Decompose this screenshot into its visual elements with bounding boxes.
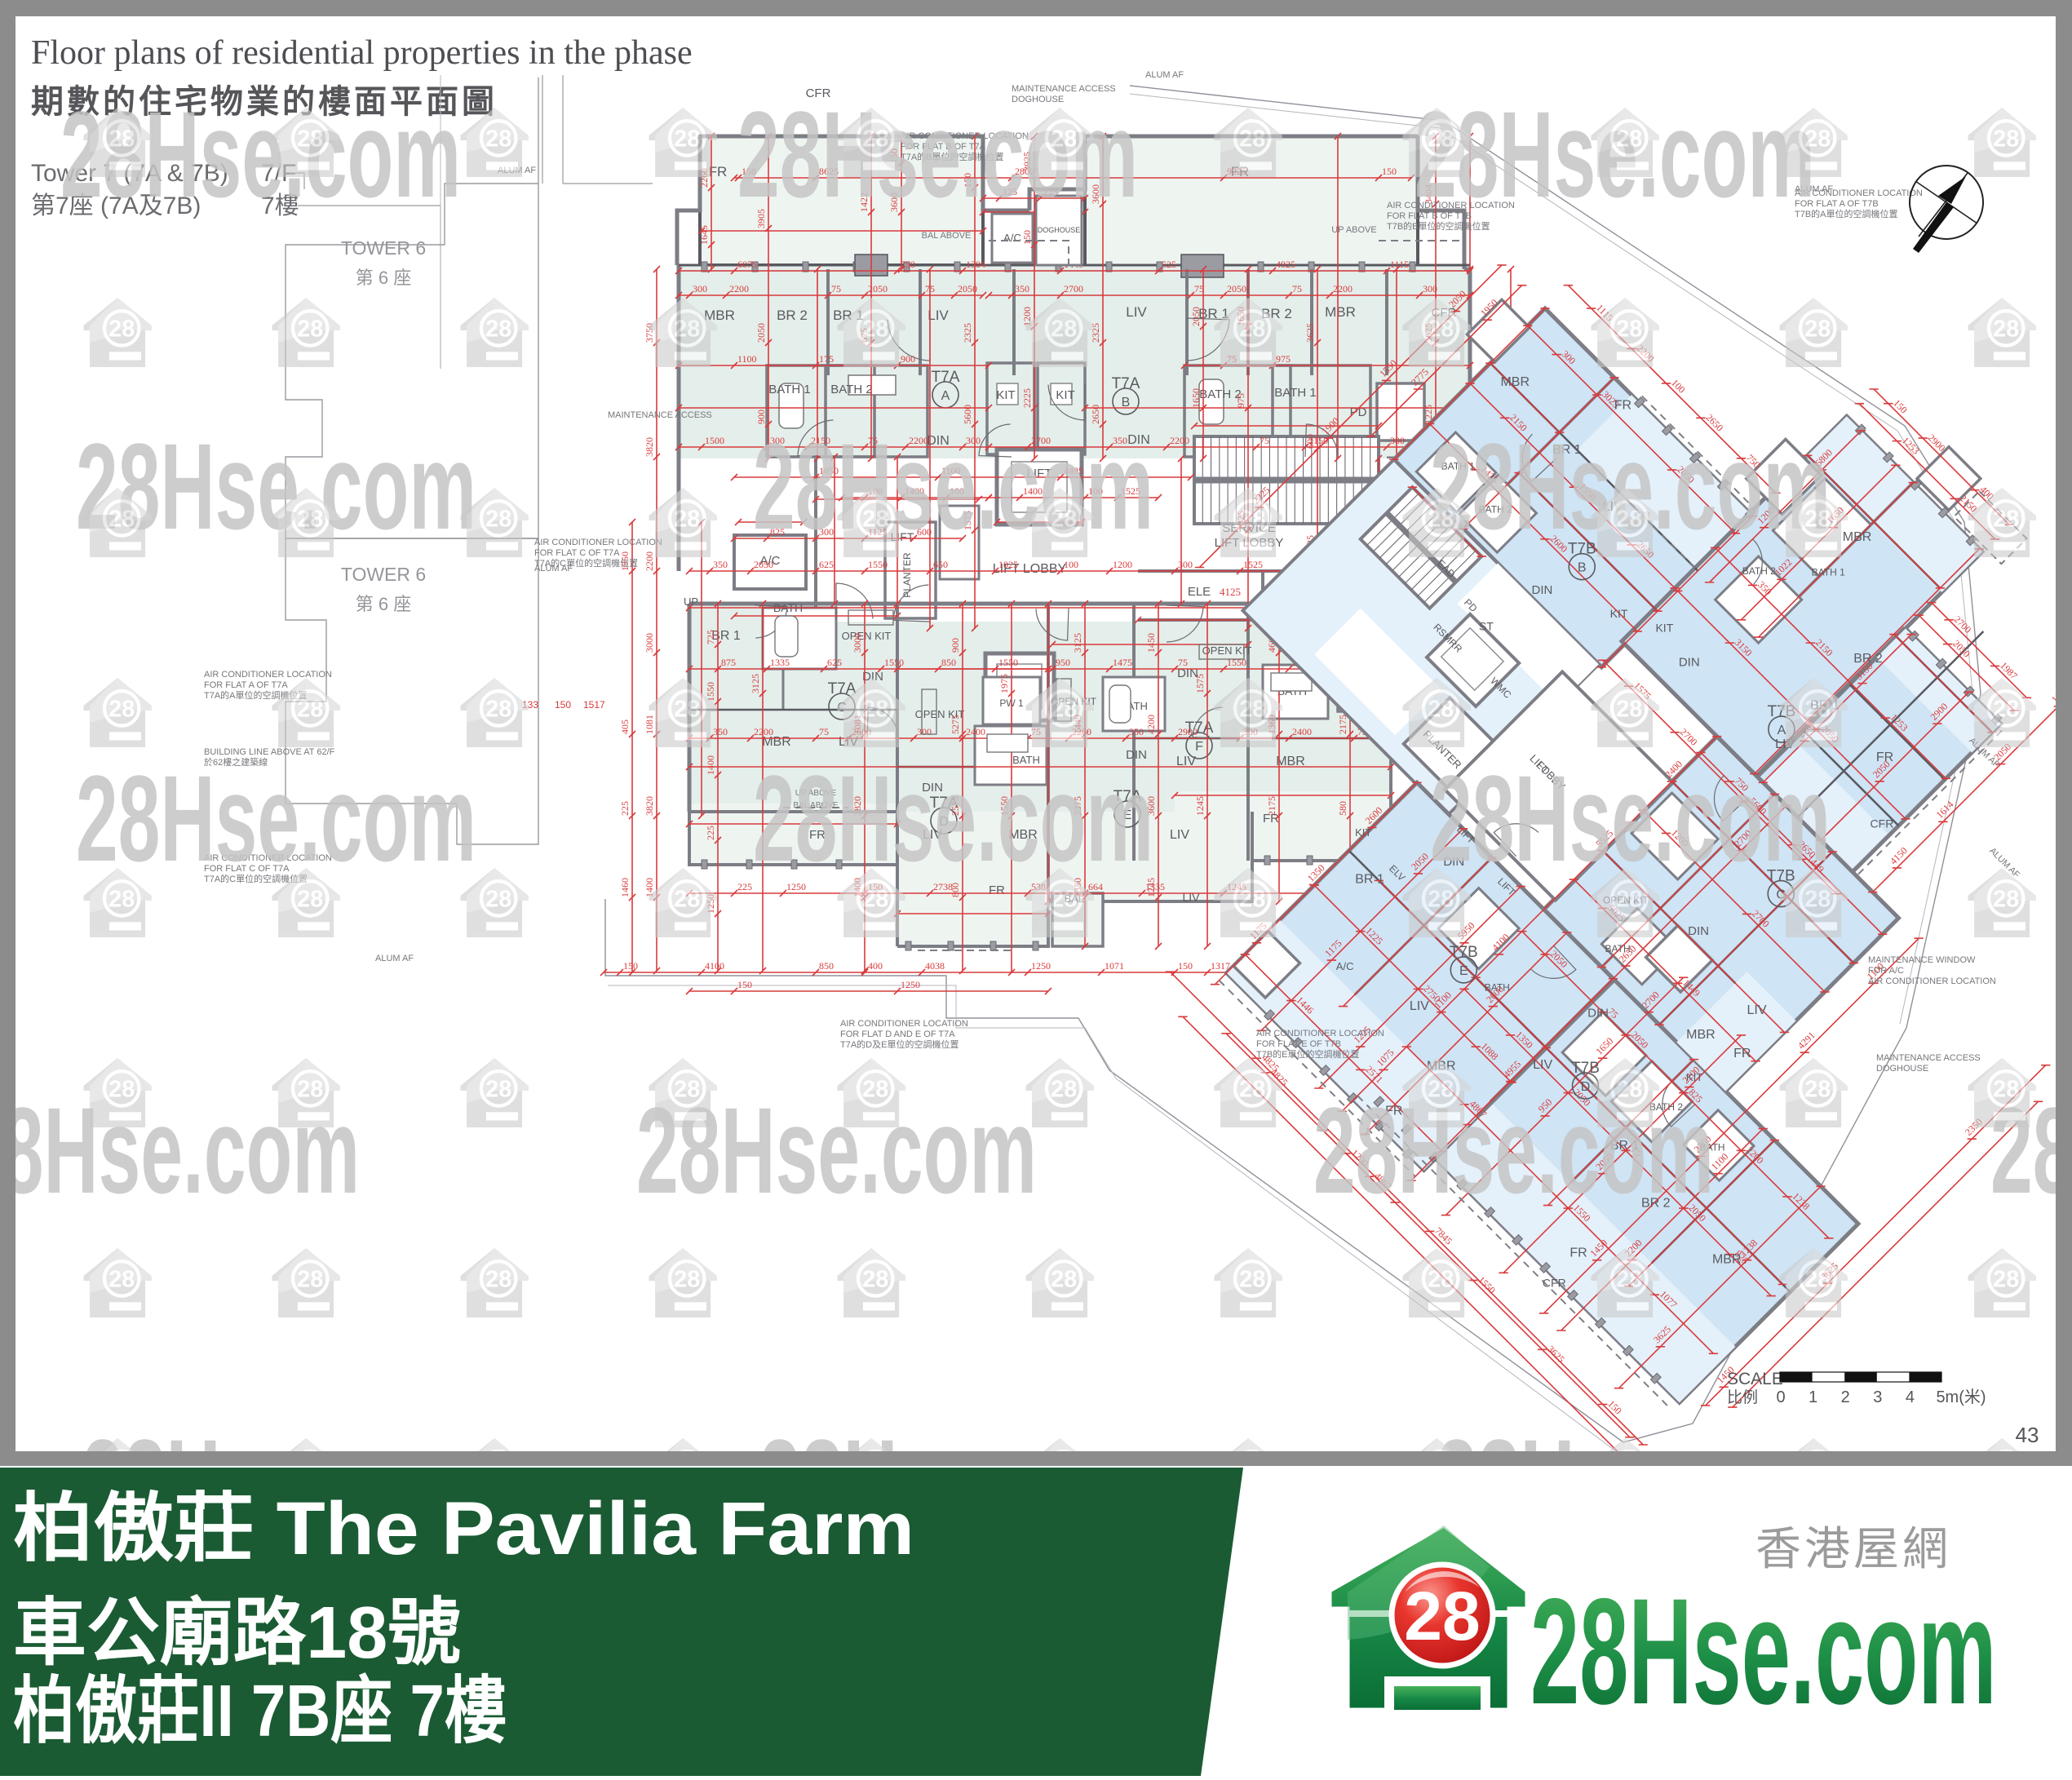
svg-text:75: 75 [819,726,829,737]
svg-text:BATH 1: BATH 1 [1274,386,1316,400]
svg-text:DIN: DIN [1688,924,1709,938]
svg-text:5275: 5275 [950,715,961,734]
svg-text:MAINTENANCE ACCESS: MAINTENANCE ACCESS [608,410,712,420]
svg-text:DOGHOUSE: DOGHOUSE [1876,1064,1928,1074]
svg-text:LIV: LIV [1126,304,1147,320]
svg-text:DIN: DIN [1532,583,1553,597]
svg-text:ALUM AF: ALUM AF [375,954,414,963]
svg-text:1525: 1525 [1243,559,1263,570]
svg-text:KIT: KIT [1655,622,1673,635]
svg-text:2400: 2400 [1292,726,1312,737]
svg-text:350: 350 [1129,726,1144,737]
svg-text:2175: 2175 [1266,796,1277,816]
svg-text:100: 100 [1064,559,1078,570]
svg-text:150: 150 [1382,166,1397,177]
svg-text:1245: 1245 [1194,796,1206,816]
svg-text:比例: 比例 [1727,1388,1758,1406]
svg-text:3125: 3125 [1072,633,1083,653]
svg-text:2: 2 [1841,1388,1850,1406]
svg-text:LIV: LIV [1170,828,1189,842]
svg-text:150: 150 [1021,230,1033,245]
svg-text:525: 525 [1162,259,1176,270]
svg-text:1550: 1550 [884,657,904,668]
svg-text:B: B [1578,561,1587,575]
svg-text:1500: 1500 [705,435,724,446]
svg-text:BATH: BATH [1605,943,1631,954]
svg-text:2200: 2200 [1333,283,1353,294]
svg-text:300: 300 [693,283,707,294]
svg-text:300: 300 [1390,435,1405,446]
svg-text:香港屋網: 香港屋網 [1755,1523,1951,1574]
svg-text:AIR CONDITIONER LOCATION: AIR CONDITIONER LOCATION [1868,976,1996,986]
svg-text:OPEN KIT: OPEN KIT [842,630,892,642]
svg-text:225: 225 [705,826,716,840]
svg-text:3820: 3820 [644,796,655,816]
svg-text:4200: 4200 [1145,715,1157,734]
svg-text:28Hse.com: 28Hse.com [1530,1568,1996,1736]
svg-text:T7A: T7A [1112,375,1140,392]
svg-text:650: 650 [933,559,948,570]
svg-text:43: 43 [2016,1423,2039,1447]
svg-text:1115: 1115 [1390,259,1409,270]
svg-text:2200: 2200 [1170,435,1189,446]
svg-text:T7B的E單位的空調機位置: T7B的E單位的空調機位置 [1256,1048,1360,1060]
svg-text:4100: 4100 [705,960,724,972]
svg-text:1025: 1025 [998,559,1018,570]
svg-text:850: 850 [941,657,956,668]
svg-text:DIN: DIN [1587,1006,1609,1020]
svg-text:2175: 2175 [1337,715,1348,734]
svg-text:1460: 1460 [619,878,631,897]
svg-text:1081: 1081 [644,715,655,734]
svg-text:KIT: KIT [1610,607,1628,620]
svg-text:1975: 1975 [998,674,1010,693]
svg-text:2050: 2050 [1227,283,1246,294]
svg-text:MBR: MBR [1843,530,1872,544]
svg-text:KIT: KIT [1355,826,1371,839]
svg-text:BATH 2: BATH 2 [830,383,872,396]
svg-text:0: 0 [1776,1388,1785,1406]
svg-text:300: 300 [917,726,932,737]
svg-text:300: 300 [1178,559,1193,570]
svg-text:6075: 6075 [737,259,757,270]
svg-text:FOR FLAT A OF T7A: FOR FLAT A OF T7A [204,680,288,690]
svg-text:2400: 2400 [966,726,985,737]
svg-text:975: 975 [1276,353,1291,365]
svg-text:5m(米): 5m(米) [1936,1388,1986,1406]
svg-text:BR 2: BR 2 [777,308,808,323]
svg-text:3000: 3000 [852,633,863,653]
svg-text:T7A的D及E單位的空調機位置: T7A的D及E單位的空調機位置 [840,1038,959,1050]
svg-text:TOWER 6: TOWER 6 [341,564,426,585]
svg-text:3125: 3125 [750,674,761,693]
svg-text:28Hse.com: 28Hse.com [1313,1083,1714,1219]
svg-text:FR: FR [1614,399,1631,413]
svg-text:FR: FR [1733,1047,1751,1060]
svg-text:BR 2: BR 2 [1853,652,1883,666]
svg-text:BR 1: BR 1 [1355,872,1384,886]
svg-text:2050: 2050 [1190,307,1202,326]
svg-text:FOR FLAT E OF T7B: FOR FLAT E OF T7B [1256,1039,1341,1049]
svg-text:75: 75 [1178,657,1188,668]
svg-text:1071: 1071 [1105,960,1124,972]
svg-text:2050: 2050 [754,559,773,570]
svg-text:Floor plans of residential pro: Floor plans of residential properties in… [31,34,693,72]
svg-text:975: 975 [1235,393,1246,408]
svg-text:E: E [1459,964,1468,978]
svg-text:350: 350 [713,726,728,737]
svg-text:625: 625 [819,559,834,570]
svg-text:T7B: T7B [1450,944,1478,961]
svg-text:1: 1 [1809,1388,1817,1406]
svg-text:3: 3 [1873,1388,1882,1406]
svg-text:第 6 座: 第 6 座 [356,268,411,288]
svg-text:1250: 1250 [901,979,920,990]
svg-text:A: A [1778,724,1786,737]
svg-text:FR: FR [1569,1246,1587,1260]
svg-text:225: 225 [619,801,631,816]
svg-text:ELE: ELE [1188,585,1211,599]
svg-text:A: A [941,389,950,403]
svg-text:ALUM AF: ALUM AF [1145,70,1184,80]
svg-text:2200: 2200 [729,283,749,294]
svg-text:875: 875 [721,657,736,668]
svg-text:28Hse.com: 28Hse.com [76,751,476,887]
svg-text:LIV: LIV [928,308,949,323]
svg-text:A/C: A/C [1003,232,1021,244]
svg-text:SCALE: SCALE [1727,1370,1783,1388]
svg-text:LIV: LIV [1410,999,1429,1013]
svg-text:2050: 2050 [755,323,767,343]
svg-text:MAINTENANCE ACCESS: MAINTENANCE ACCESS [1876,1053,1981,1063]
svg-text:1250: 1250 [1031,960,1051,972]
svg-text:KIT: KIT [1056,388,1074,402]
svg-text:BATH 2: BATH 2 [1742,565,1776,577]
svg-text:2200: 2200 [644,551,655,571]
svg-text:1475: 1475 [1113,657,1132,668]
svg-text:350: 350 [713,559,728,570]
svg-text:1517: 1517 [583,699,605,711]
svg-text:FR: FR [1876,751,1893,764]
svg-text:2225: 2225 [1021,388,1033,408]
svg-text:BATH 1: BATH 1 [1812,566,1845,578]
svg-text:AIR CONDITIONER LOCATION: AIR CONDITIONER LOCATION [204,670,332,680]
svg-text:BATH: BATH [1485,982,1510,994]
svg-text:MBR: MBR [1325,304,1356,320]
svg-text:4: 4 [1906,1388,1915,1406]
svg-text:3000: 3000 [644,633,655,653]
svg-text:1450: 1450 [1145,633,1157,653]
svg-text:900: 900 [901,353,915,365]
svg-text:MAINTENANCE WINDOW: MAINTENANCE WINDOW [1868,955,1976,965]
svg-text:1335: 1335 [770,657,790,668]
svg-text:F: F [1195,740,1203,754]
svg-text:LIV: LIV [1533,1058,1552,1072]
svg-text:2200: 2200 [754,726,773,737]
svg-text:75: 75 [831,283,841,294]
svg-text:AIR CONDITIONER LOCATION: AIR CONDITIONER LOCATION [534,538,662,547]
svg-text:900: 900 [950,638,961,653]
svg-text:柏傲莊II 7B座 7樓: 柏傲莊II 7B座 7樓 [13,1671,507,1752]
svg-text:MBR: MBR [1686,1028,1716,1042]
svg-text:MBR: MBR [1712,1252,1742,1266]
svg-text:28Hse.com: 28Hse.com [1430,751,1831,887]
svg-text:1575: 1575 [1194,674,1206,693]
svg-text:DOGHOUSE: DOGHOUSE [1038,226,1081,234]
svg-text:CFR: CFR [1543,1276,1566,1289]
svg-text:第 6 座: 第 6 座 [356,594,411,614]
svg-text:350: 350 [1015,283,1029,294]
svg-text:625: 625 [827,657,842,668]
svg-text:A/C: A/C [1336,960,1354,972]
svg-text:PLANTER: PLANTER [901,552,913,598]
svg-text:MBR: MBR [1500,375,1530,389]
svg-text:580: 580 [1337,801,1348,816]
svg-text:BATH 1: BATH 1 [768,383,810,396]
svg-text:405: 405 [619,720,631,734]
svg-text:FOR FLAT C OF T7A: FOR FLAT C OF T7A [534,548,620,558]
svg-text:150: 150 [555,699,571,711]
svg-text:4038: 4038 [925,960,945,972]
svg-text:1550: 1550 [998,657,1018,668]
svg-text:150: 150 [737,979,752,990]
svg-text:FOR FLAT D AND E OF T7A: FOR FLAT D AND E OF T7A [840,1029,955,1039]
svg-text:CFR: CFR [1871,817,1894,830]
svg-text:1650: 1650 [1190,388,1202,408]
svg-text:T7A: T7A [932,369,960,386]
svg-text:柏傲莊 The Pavilia Farm: 柏傲莊 The Pavilia Farm [13,1487,914,1570]
svg-text:3625: 3625 [1304,323,1316,343]
svg-text:車公廟路18號: 車公廟路18號 [13,1592,461,1674]
svg-text:150: 150 [1178,960,1193,972]
svg-text:FOR A/C: FOR A/C [1868,966,1904,976]
svg-text:ALUM AF: ALUM AF [534,564,573,573]
svg-text:850: 850 [819,960,834,972]
svg-text:1200: 1200 [1113,559,1132,570]
svg-text:1400: 1400 [705,755,716,775]
svg-text:1550: 1550 [868,559,888,570]
svg-text:DIN: DIN [1679,655,1700,669]
svg-text:3820: 3820 [644,437,655,457]
svg-text:KIT: KIT [1686,1071,1702,1083]
svg-text:725: 725 [705,630,716,644]
svg-text:BAL ABOVE: BAL ABOVE [922,231,972,241]
svg-text:TOWER 6: TOWER 6 [341,237,426,259]
svg-text:4925: 4925 [1276,259,1295,270]
svg-text:950: 950 [1056,657,1070,668]
svg-text:400: 400 [868,960,883,972]
svg-text:175: 175 [819,353,834,365]
svg-text:75: 75 [1292,283,1302,294]
svg-text:AIR CONDITIONER LOCATION: AIR CONDITIONER LOCATION [1256,1029,1384,1038]
svg-text:28Hse.com: 28Hse.com [753,751,1153,887]
svg-text:ST: ST [1479,620,1494,633]
svg-text:KIT: KIT [996,388,1015,402]
svg-text:28: 28 [1404,1578,1480,1654]
svg-text:T7B: T7B [1571,1060,1600,1077]
svg-text:1394: 1394 [966,259,985,270]
svg-text:2325: 2325 [962,323,973,343]
svg-text:150: 150 [623,960,638,972]
svg-text:4125: 4125 [1220,586,1241,598]
svg-text:LIV: LIV [1747,1003,1767,1017]
svg-text:225: 225 [737,881,752,892]
svg-text:1100: 1100 [737,353,757,365]
svg-text:AIR CONDITIONER LOCATION: AIR CONDITIONER LOCATION [840,1019,968,1029]
svg-text:2700: 2700 [1064,283,1083,294]
svg-text:28Hse.com: 28Hse.com [753,418,1153,555]
svg-text:75: 75 [1260,435,1269,446]
